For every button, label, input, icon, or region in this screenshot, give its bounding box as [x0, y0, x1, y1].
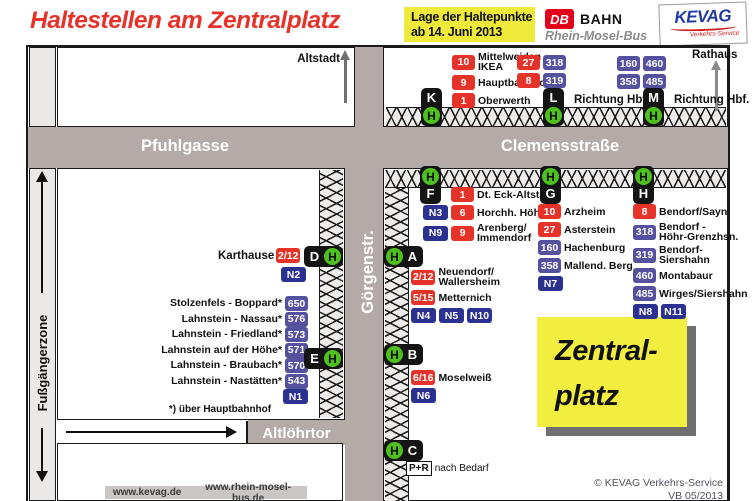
route-badge: 485: [643, 74, 666, 89]
route-destination: Bendorf/Sayn: [659, 207, 727, 217]
zentralplatz-label-box: Zentral- platz: [537, 317, 687, 427]
date-info-box: Lage der Haltepunkte ab 14. Juni 2013: [404, 7, 535, 42]
route-badge: N7: [538, 276, 563, 291]
route-row: Lahnstein auf der Höhe*571: [150, 343, 308, 358]
stop-F-routes: 1Dt. Eck-AltstadtN36Horchh. HöheN99Arenb…: [423, 187, 555, 246]
route-row: 1Oberwerth: [452, 93, 549, 108]
version-label: VB 05/2013: [560, 490, 723, 501]
rhein-mosel-bus-label: Rhein-Mosel-Bus: [545, 29, 647, 43]
route-badge: 319: [633, 248, 656, 263]
route-row: Lahnstein - Nastätten*543: [150, 374, 308, 389]
route-row: N4N5N10: [411, 308, 500, 323]
footnote-via-hauptbahnhof: *) über Hauptbahnhof: [150, 404, 290, 415]
route-badge: 6/16: [411, 370, 435, 385]
route-destination: Montabaur: [659, 271, 713, 281]
route-row: N6: [411, 388, 492, 403]
stop-M-marker: M H: [643, 88, 664, 126]
arrow-right-icon: [226, 426, 237, 438]
stop-A-routes: 2/12Neuendorf/ Wallersheim5/15Metternich…: [411, 267, 500, 326]
stop-H-marker: H H: [633, 166, 654, 204]
stop-letter: G: [542, 186, 559, 202]
stop-L-routes: 273188319: [517, 55, 566, 91]
route-badge: N2: [281, 267, 306, 282]
stop-B-routes: 6/16MoselweißN6: [411, 370, 492, 406]
zentralplatz-line2: platz: [555, 374, 687, 419]
stop-E-marker: E H: [304, 348, 343, 369]
stop-letter: D: [306, 249, 323, 265]
stop-letter: L: [545, 90, 562, 106]
stop-G-marker: H G: [540, 166, 561, 204]
route-row: 318Bendorf - Höhr-Grenzhsn.: [633, 222, 748, 242]
route-row: 8Bendorf/Sayn: [633, 204, 748, 219]
kevag-sub-label: Verkehrs-Service: [690, 30, 740, 39]
zentralplatz-line1: Zentral-: [555, 329, 687, 374]
stop-A-marker: H A: [384, 246, 423, 267]
stop-letter: F: [422, 186, 439, 202]
label-altstadt: Altstadt: [296, 53, 340, 65]
label-fussgaengerzone: Fußgängerzone: [23, 304, 61, 422]
route-row: N36Horchh. Höhe: [423, 205, 555, 220]
kevag-url: www.kevag.de: [105, 487, 189, 498]
route-destination: Lahnstein - Braubach*: [171, 358, 282, 373]
route-row: 2/12Neuendorf/ Wallersheim: [411, 267, 500, 287]
route-badge: 27: [517, 55, 540, 70]
route-destination: nach Bedarf: [435, 464, 489, 474]
copyright-line: © KEVAG Verkehrs-Service: [560, 477, 723, 490]
route-row: 1Dt. Eck-Altstadt: [423, 187, 555, 202]
haltestelle-sign-icon: H: [324, 350, 341, 367]
route-badge: 543: [285, 374, 308, 389]
route-destination: Metternich: [438, 293, 491, 303]
stop-L-marker: L H: [543, 88, 564, 126]
date-info-line2: ab 14. Juni 2013: [411, 25, 535, 40]
stop-D-name: Karthause: [218, 250, 272, 262]
route-badge: N11: [661, 304, 686, 319]
route-badge: N5: [439, 308, 464, 323]
route-badge: 1: [452, 93, 475, 108]
route-destination: Asterstein: [564, 225, 615, 235]
route-row: 10Arzheim: [538, 204, 633, 219]
route-row: 27Asterstein: [538, 222, 633, 237]
route-destination: Moselweiß: [438, 373, 491, 383]
route-badge: 576: [285, 312, 308, 327]
street-to-altstadt: [355, 47, 383, 127]
haltestelle-sign-icon: H: [542, 168, 559, 185]
route-badge: 358: [617, 74, 640, 89]
stop-letter: B: [404, 347, 421, 363]
date-info-line1: Lage der Haltepunkte: [411, 10, 535, 25]
route-row: 160Hachenburg: [538, 240, 633, 255]
route-badge: 10: [538, 204, 561, 219]
haltestelle-sign-icon: H: [645, 107, 662, 124]
route-row: 358Mallend. Berg: [538, 258, 633, 273]
route-row: 8319: [517, 73, 566, 88]
route-badge: 573: [285, 327, 308, 342]
route-row: 6/16Moselweiß: [411, 370, 492, 385]
stop-H-routes: 8Bendorf/Sayn318Bendorf - Höhr-Grenzhsn.…: [633, 204, 748, 322]
stop-letter: K: [423, 90, 440, 106]
route-destination: Neuendorf/ Wallersheim: [438, 267, 499, 287]
route-row: 460Montabaur: [633, 268, 748, 283]
route-destination: Arenberg/ Immendorf: [477, 223, 531, 243]
route-badge: N8: [633, 304, 658, 319]
haltestelle-sign-icon: H: [422, 168, 439, 185]
route-badge: 10: [452, 55, 475, 70]
route-row: 160460: [617, 56, 666, 71]
route-badge: 460: [643, 56, 666, 71]
route-badge: 318: [543, 55, 566, 70]
map-left-border: [26, 45, 28, 501]
route-destination: Lahnstein - Nassau*: [182, 312, 282, 327]
route-badge: N10: [467, 308, 492, 323]
route-destination: Wirges/Siershahn: [659, 289, 748, 299]
stop-L-direction: Richtung Hbf.: [574, 94, 649, 106]
haltestelle-sign-icon: H: [386, 442, 403, 459]
route-badge: N4: [411, 308, 436, 323]
website-bar: www.kevag.de www.rhein-mosel-bus.de: [105, 486, 307, 499]
route-destination: Arzheim: [564, 207, 605, 217]
route-row: 319Bendorf- Siershahn: [633, 245, 748, 265]
route-badge: 1: [451, 187, 474, 202]
stop-C-marker: H C: [384, 440, 423, 461]
route-badge: 9: [452, 75, 475, 90]
route-row: 485Wirges/Siershahn: [633, 286, 748, 301]
stop-letter: M: [645, 90, 662, 106]
haltestelle-sign-icon: H: [423, 107, 440, 124]
route-badge: P+R: [406, 461, 432, 476]
route-row: P+Rnach Bedarf: [406, 461, 489, 476]
route-badge: 9: [451, 226, 474, 241]
stop-F-marker: H F: [420, 166, 441, 204]
route-row: 27318: [517, 55, 566, 70]
route-badge: 8: [633, 204, 656, 219]
db-logo-icon: DB: [545, 9, 574, 29]
route-badge: 650: [285, 296, 308, 311]
route-badge: 160: [538, 240, 561, 255]
page-title: Haltestellen am Zentralplatz: [30, 7, 340, 35]
pedestrian-strip-upper: [29, 47, 56, 127]
route-destination: Lahnstein auf der Höhe*: [161, 343, 282, 358]
route-badge: 160: [617, 56, 640, 71]
stop-B-marker: H B: [384, 344, 423, 365]
stop-letter: A: [404, 249, 421, 265]
stop-E-routes: Stolzenfels - Boppard*650Lahnstein - Nas…: [150, 296, 308, 405]
stop-C-routes: P+Rnach Bedarf: [406, 461, 489, 479]
route-destination: Bendorf - Höhr-Grenzhsn.: [659, 222, 738, 242]
arrow-down-icon: [36, 471, 48, 482]
route-badge: 318: [633, 225, 656, 240]
stop-M-routes: 160460358485: [617, 56, 666, 92]
route-row: Lahnstein - Nassau*576: [150, 312, 308, 327]
route-badge: 6: [451, 205, 474, 220]
platform-strip-goergenstrasse-west: [319, 170, 343, 418]
route-row: N7: [538, 276, 633, 291]
route-badge: 485: [633, 286, 656, 301]
route-destination: Lahnstein - Nastätten*: [171, 374, 282, 389]
route-row: 5/15Metternich: [411, 290, 500, 305]
route-badge: 358: [538, 258, 561, 273]
route-badge: 2/12: [411, 270, 435, 285]
route-destination: Oberwerth: [478, 96, 531, 106]
stop-M-direction: Richtung Hbf.: [674, 94, 749, 106]
route-destination: Stolzenfels - Boppard*: [170, 296, 282, 311]
haltestelle-sign-icon: H: [324, 248, 341, 265]
haltestelle-sign-icon: H: [386, 248, 403, 265]
arrow-shaft: [66, 431, 226, 433]
bahn-wordmark: BAHN: [580, 11, 622, 27]
transit-stop-map: Haltestellen am Zentralplatz Lage der Ha…: [0, 0, 754, 501]
db-bahn-logo: DB BAHN Rhein-Mosel-Bus: [545, 9, 647, 43]
stop-D-marker: D H: [304, 246, 343, 267]
arrow-shaft: [41, 181, 43, 293]
stop-letter: E: [306, 351, 323, 367]
route-badge: N1: [283, 389, 308, 404]
street-label-goergenstrasse: Görgenstr.: [350, 222, 386, 322]
stop-G-routes: 10Arzheim27Asterstein160Hachenburg358Mal…: [538, 204, 633, 294]
route-badge: 2/12: [276, 248, 300, 263]
route-badge: N9: [423, 226, 448, 241]
route-row: Stolzenfels - Boppard*650: [150, 296, 308, 311]
stop-letter: C: [404, 443, 421, 459]
haltestelle-sign-icon: H: [635, 168, 652, 185]
arrow-shaft: [41, 428, 43, 472]
route-badge: 319: [543, 73, 566, 88]
kevag-logo: KEVAG Verkehrs-Service: [658, 1, 747, 46]
route-destination: Lahnstein - Friedland*: [172, 327, 282, 342]
route-destination: Horchh. Höhe: [477, 208, 546, 218]
haltestelle-sign-icon: H: [386, 346, 403, 363]
route-row: N8N11: [633, 304, 748, 319]
stop-K-marker: K H: [421, 88, 442, 126]
route-badge: 460: [633, 268, 656, 283]
route-row: N99Arenberg/ Immendorf: [423, 223, 555, 243]
street-label-clemensstrasse: Clemensstraße: [450, 137, 670, 156]
copyright-note: © KEVAG Verkehrs-Service VB 05/2013: [560, 477, 723, 501]
route-destination: Mallend. Berg: [564, 261, 633, 271]
route-badge: N6: [411, 388, 436, 403]
route-row: Lahnstein - Braubach*570: [150, 358, 308, 373]
street-label-altloehrtor: Altlöhrtor: [250, 425, 343, 442]
street-label-pfuhlgasse: Pfuhlgasse: [85, 137, 285, 156]
route-destination: Bendorf- Siershahn: [659, 245, 710, 265]
route-row: Lahnstein - Friedland*573: [150, 327, 308, 342]
route-badge: N3: [423, 205, 448, 220]
route-row: 358485: [617, 74, 666, 89]
route-badge: 8: [517, 73, 540, 88]
altstadt-arrow-shaft: [344, 59, 347, 103]
stop-letter: H: [635, 186, 652, 202]
route-destination: Hachenburg: [564, 243, 625, 253]
route-badge: 27: [538, 222, 561, 237]
route-badge: 5/15: [411, 290, 435, 305]
route-row: N1: [150, 389, 308, 404]
rhein-mosel-bus-url: www.rhein-mosel-bus.de: [189, 482, 307, 501]
haltestelle-sign-icon: H: [545, 107, 562, 124]
